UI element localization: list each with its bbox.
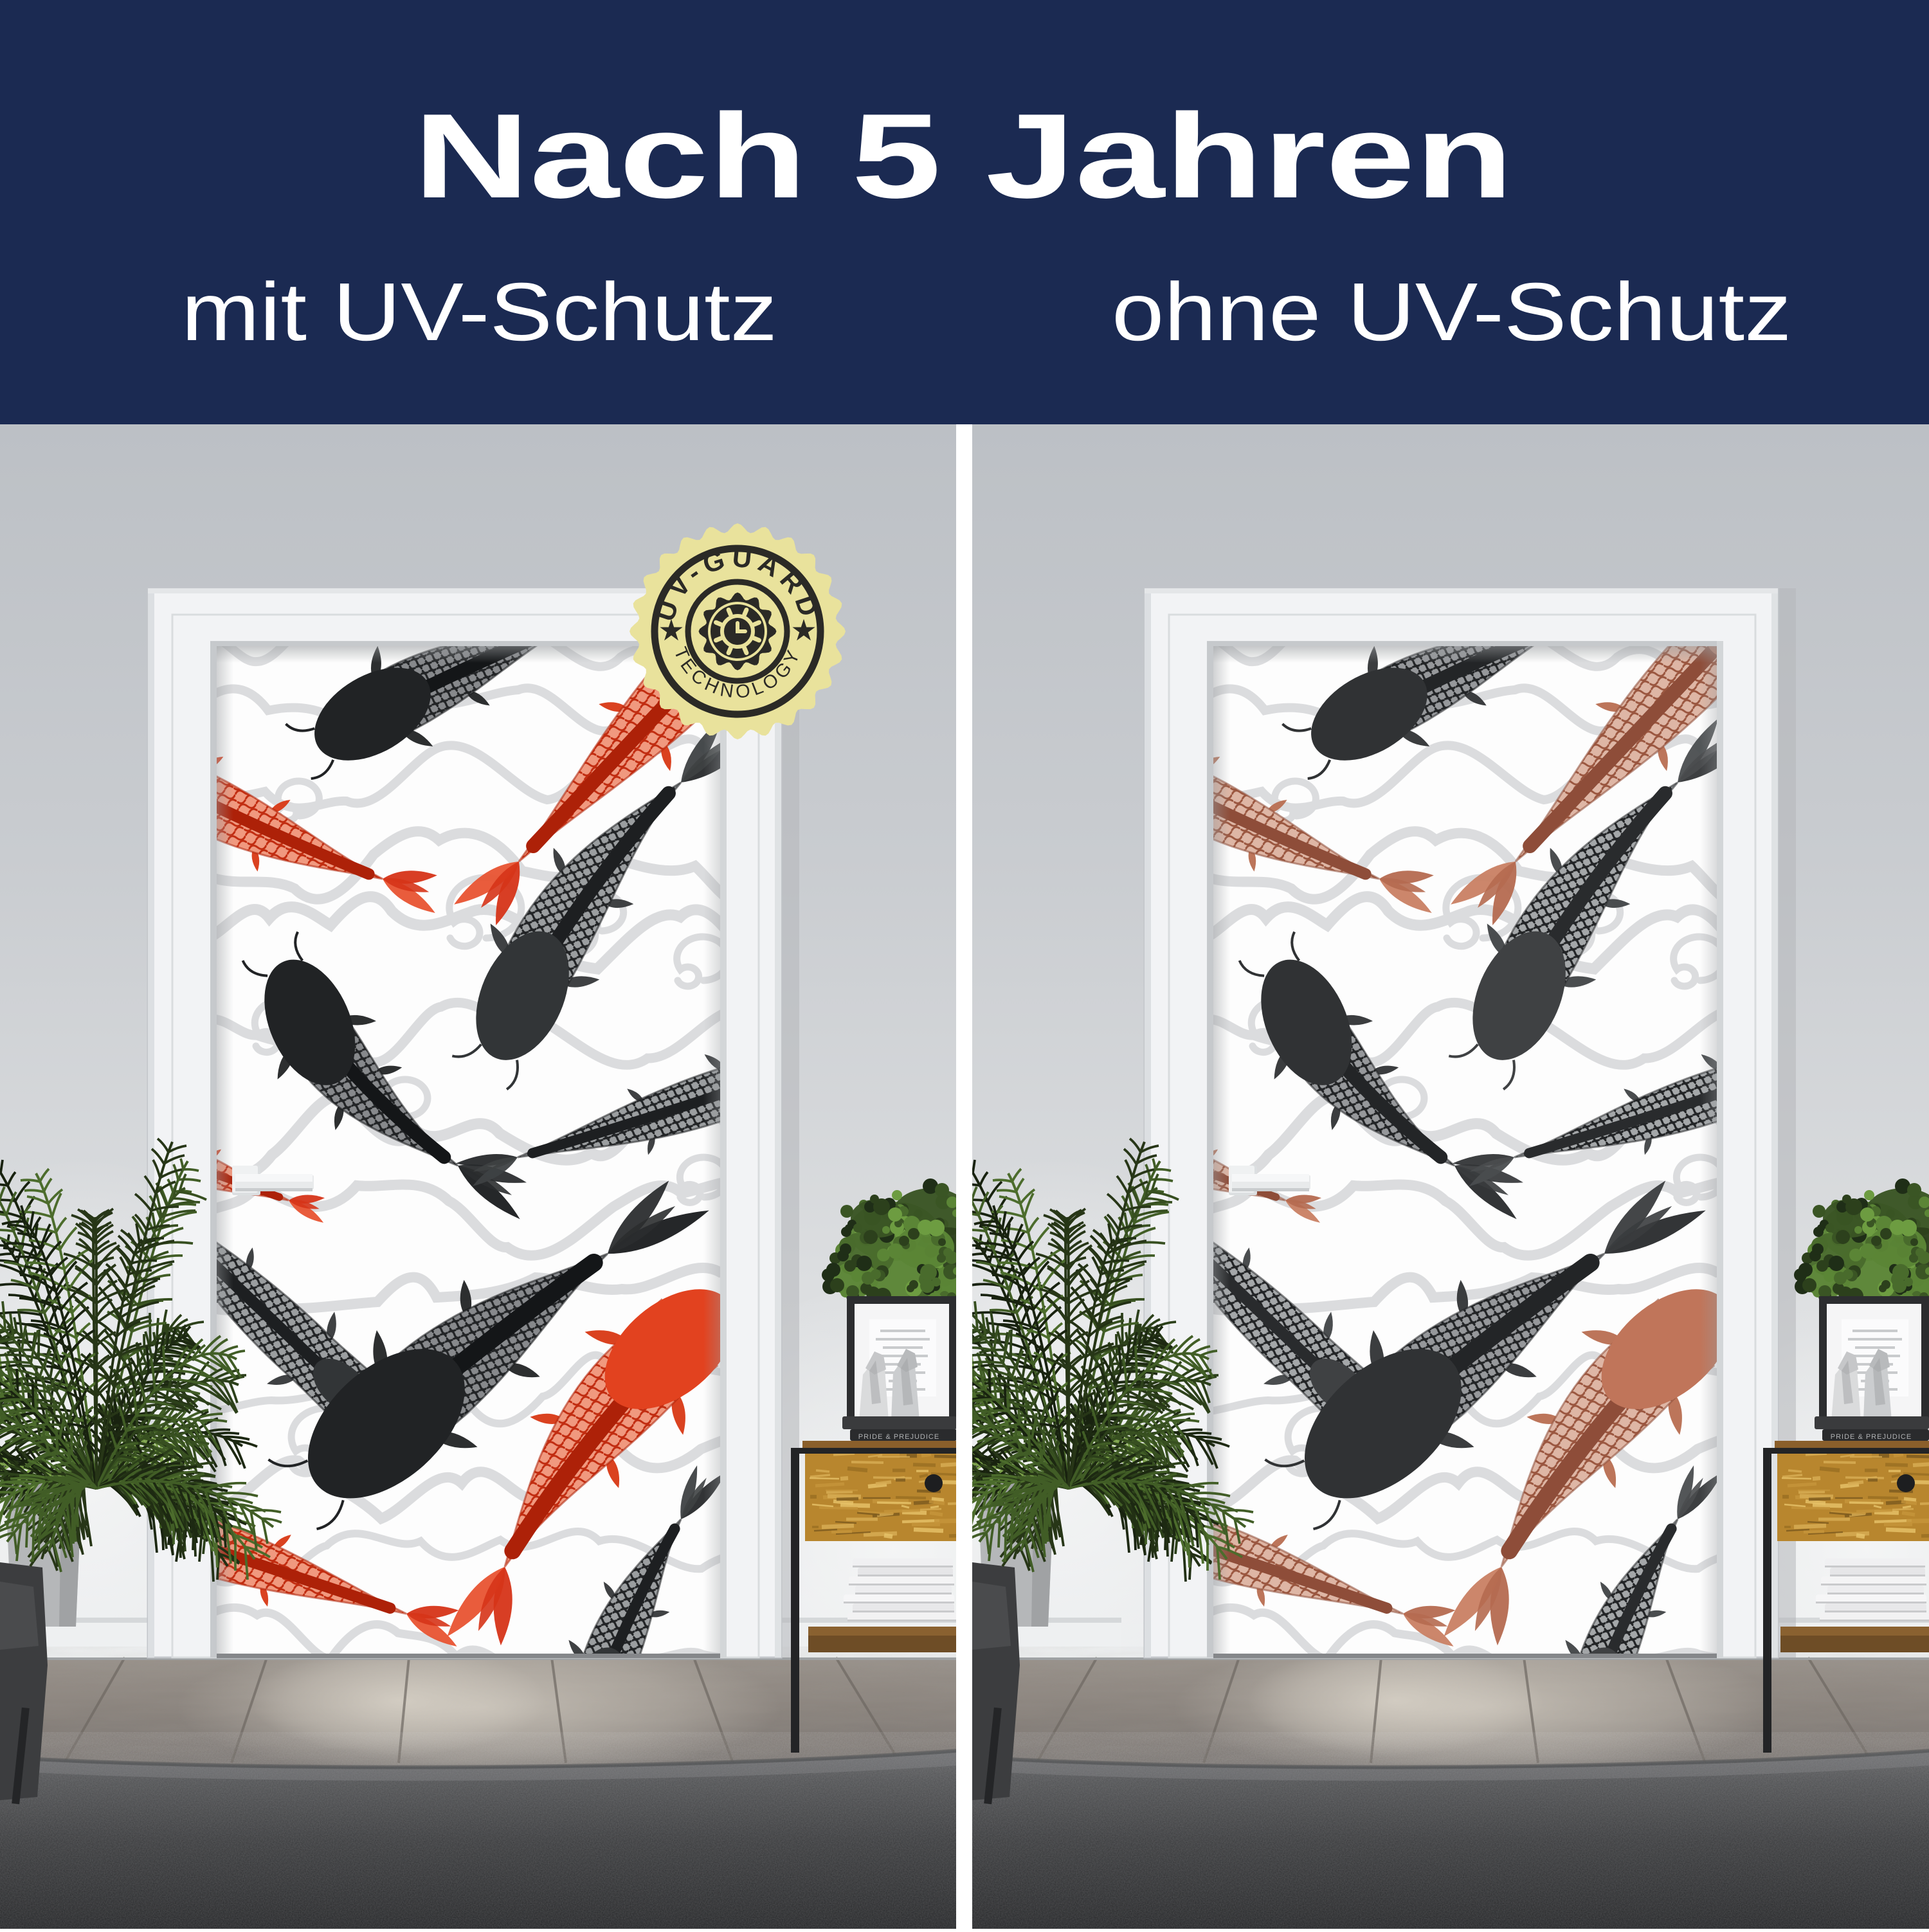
svg-text:PRIDE & PREJUDICE: PRIDE & PREJUDICE — [1831, 1433, 1912, 1441]
svg-text:PRIDE & PREJUDICE: PRIDE & PREJUDICE — [858, 1433, 939, 1441]
